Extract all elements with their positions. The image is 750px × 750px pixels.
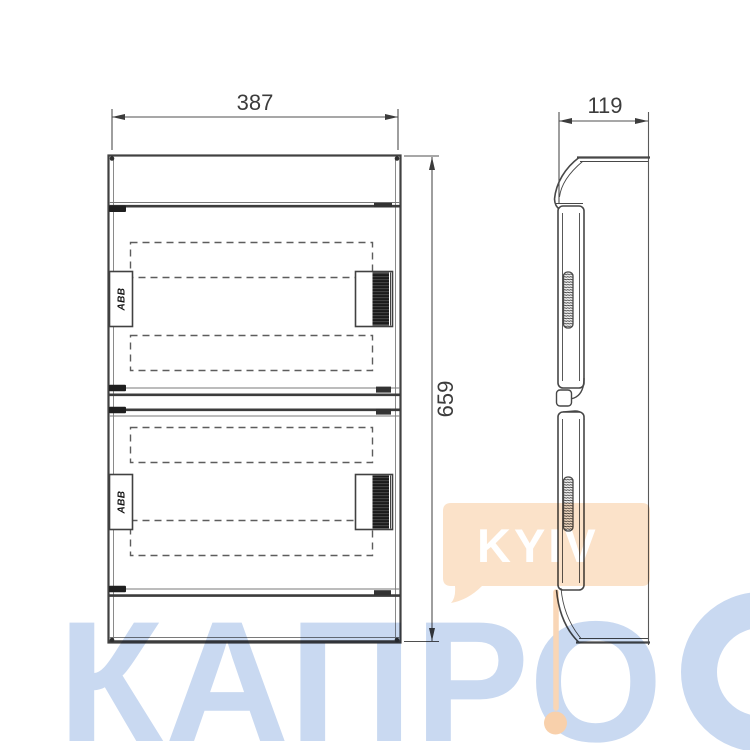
watermark-kyiv-text: KYIV — [477, 519, 599, 572]
technical-drawing-page: ABB ABB — [0, 0, 750, 750]
watermark-kapro-text: КАПРО — [58, 586, 665, 750]
watermark-partial-ring — [699, 610, 750, 734]
watermark: KYIV КАПРО — [0, 0, 750, 750]
pin-dot — [544, 712, 567, 735]
